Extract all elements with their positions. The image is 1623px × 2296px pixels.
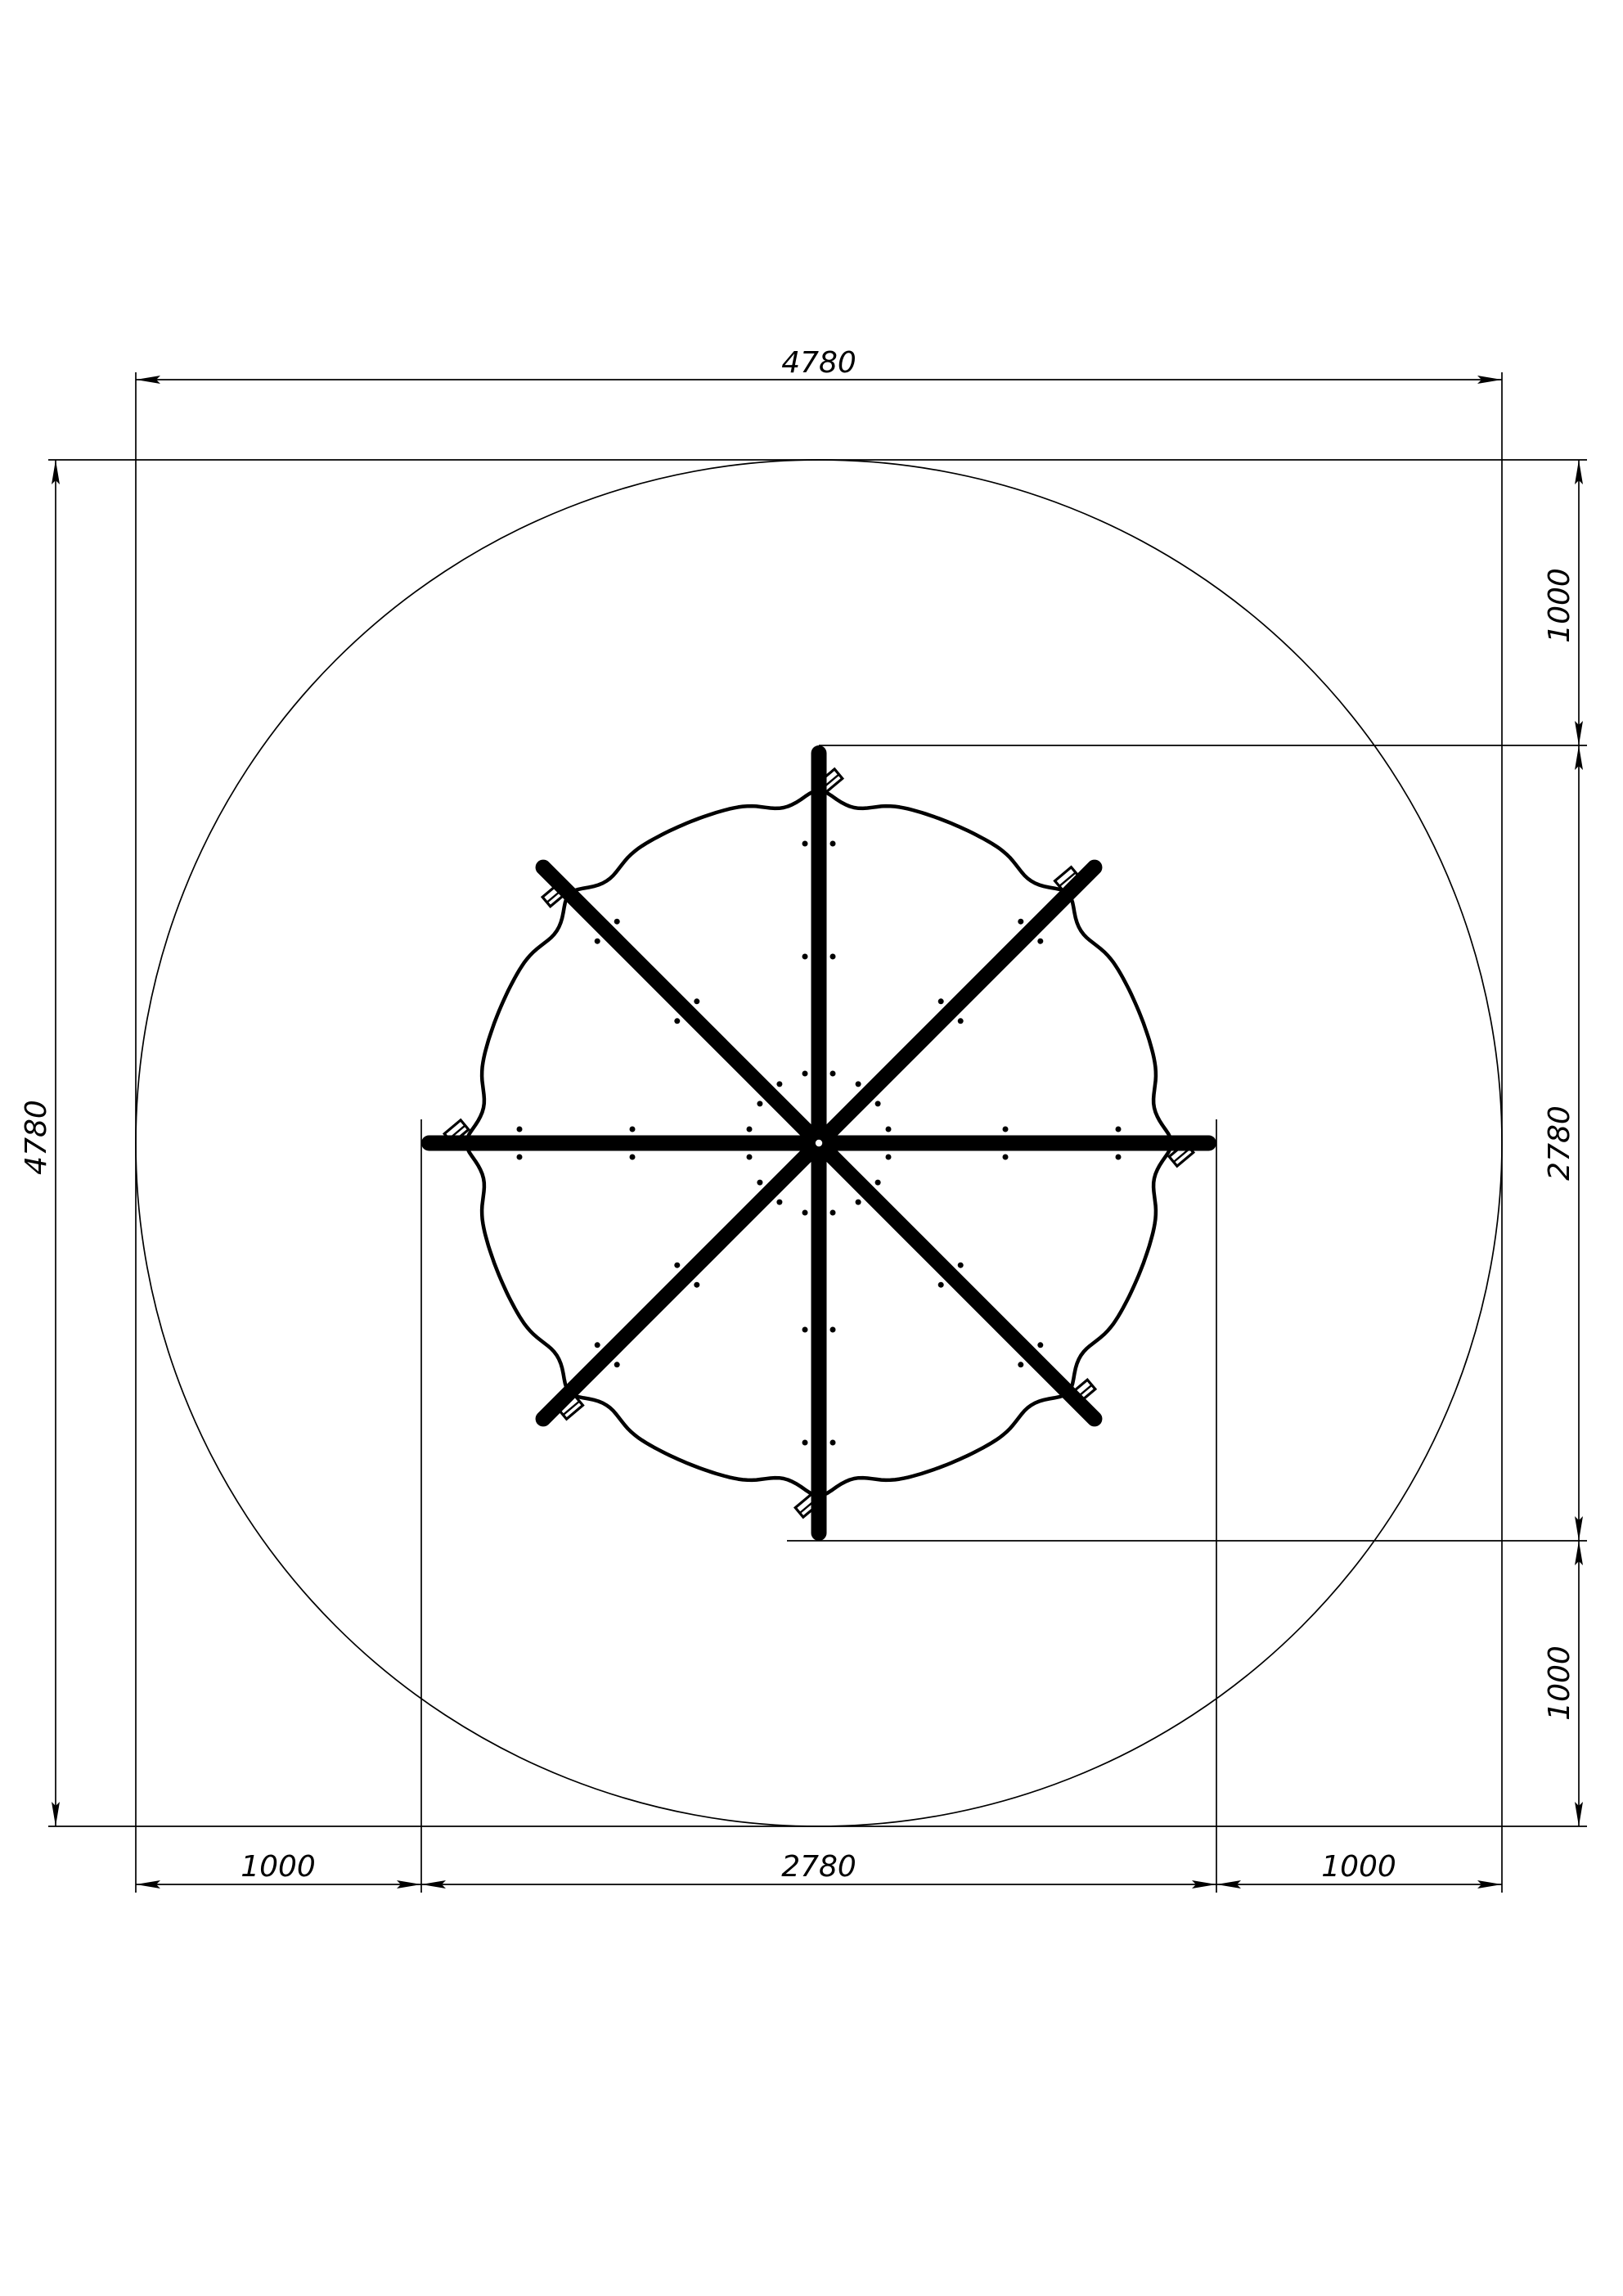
bolt-dot (776, 1200, 782, 1205)
bolt-dot (614, 919, 620, 925)
bolt-dot (803, 954, 808, 960)
bolt-dot (938, 998, 944, 1004)
bolt-dot (517, 1155, 523, 1160)
bolt-dot (958, 1263, 964, 1268)
bolt-dot (875, 1101, 881, 1106)
bolt-dot (517, 1127, 523, 1132)
bolt-dot (856, 1081, 861, 1087)
bolt-dot (595, 939, 600, 944)
bolt-dot (1116, 1127, 1122, 1132)
bolt-dot (830, 1327, 836, 1333)
bolt-dot (938, 1282, 944, 1288)
dimension-label-left: 4780 (20, 1100, 53, 1175)
bolt-dot (803, 1440, 808, 1446)
dimension-label-top: 4780 (781, 346, 856, 380)
dimension-label-bottom-0: 1000 (241, 1850, 316, 1884)
dimension-label-right-2: 1000 (1543, 1645, 1576, 1721)
bolt-dot (776, 1081, 782, 1087)
bolt-dot (694, 998, 699, 1004)
bolt-dot (694, 1282, 699, 1288)
bolt-dot (630, 1127, 636, 1132)
spoke-beam-diagonal (819, 867, 1095, 1143)
bolt-dot (886, 1127, 892, 1132)
bolt-dot (747, 1155, 753, 1160)
bolt-dot (958, 1018, 964, 1024)
bolt-dot (757, 1180, 762, 1186)
bolt-dot (830, 1071, 836, 1077)
bolt-dot (875, 1180, 881, 1186)
bolt-dot (830, 954, 836, 960)
bolt-dot (1018, 919, 1023, 925)
spoke-beam-diagonal (543, 867, 819, 1143)
bolt-dot (830, 841, 836, 847)
bolt-dot (1003, 1155, 1009, 1160)
bolt-dot (595, 1342, 600, 1348)
bolt-dot (1116, 1155, 1122, 1160)
spoke-beam-diagonal (819, 1143, 1095, 1419)
dimension-label-bottom-1: 2780 (781, 1850, 856, 1884)
bolt-dot (830, 1210, 836, 1216)
bolt-dot (674, 1018, 680, 1024)
bolt-dot (886, 1155, 892, 1160)
hub-center-dot (816, 1140, 822, 1146)
technical-drawing-plan-view: 47804780100027801000100027801000 (0, 0, 1623, 2296)
bolt-dot (674, 1263, 680, 1268)
drawing-page: 47804780100027801000100027801000 (0, 0, 1623, 2296)
bolt-dot (747, 1127, 753, 1132)
bolt-dot (614, 1362, 620, 1367)
dimension-label-right-1: 2780 (1543, 1105, 1576, 1181)
bolt-dot (630, 1155, 636, 1160)
bolt-dot (803, 841, 808, 847)
bolt-dot (1037, 1342, 1043, 1348)
dimension-label-bottom-2: 1000 (1321, 1850, 1396, 1884)
spoke-beam-diagonal (543, 1143, 819, 1419)
bolt-dot (856, 1200, 861, 1205)
bolt-dot (1037, 939, 1043, 944)
dimension-label-right-0: 1000 (1543, 568, 1576, 643)
bolt-dot (757, 1101, 762, 1106)
bolt-dot (803, 1327, 808, 1333)
bolt-dot (803, 1071, 808, 1077)
bolt-dot (1003, 1127, 1009, 1132)
bolt-dot (830, 1440, 836, 1446)
bolt-dot (803, 1210, 808, 1216)
bolt-dot (1018, 1362, 1023, 1367)
